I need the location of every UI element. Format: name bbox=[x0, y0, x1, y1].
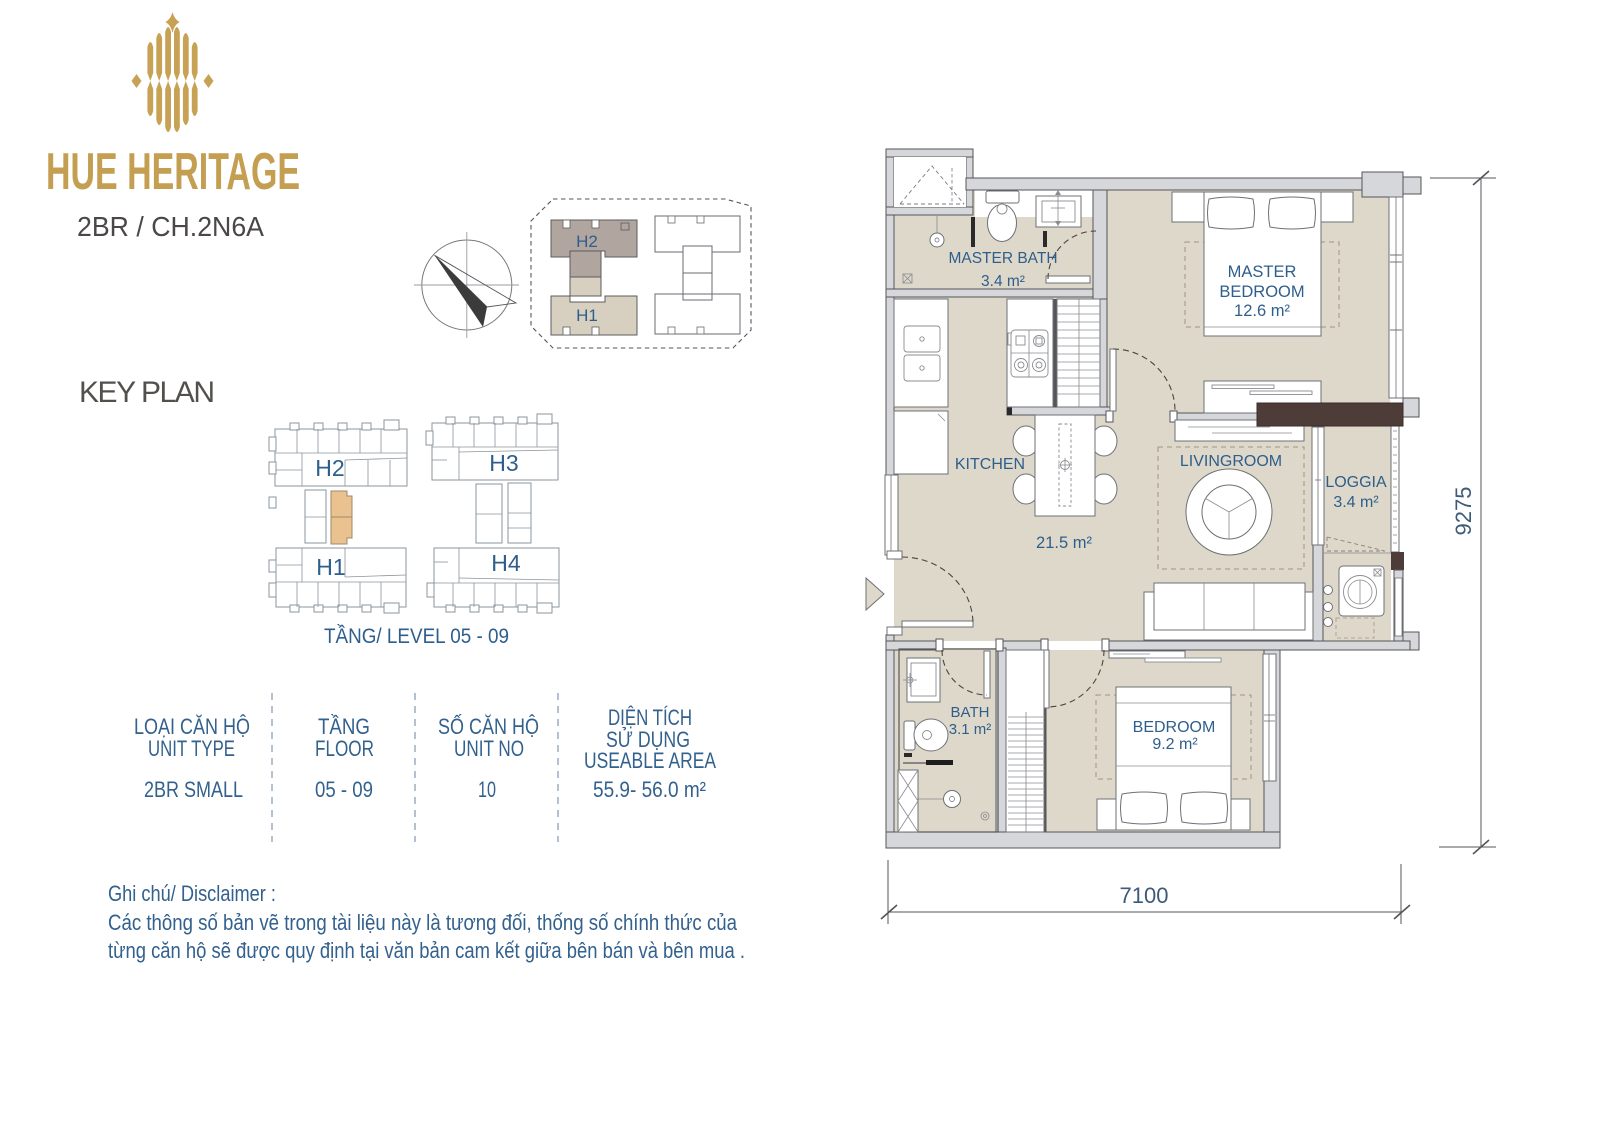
svg-text:9.2 m²: 9.2 m² bbox=[1152, 736, 1198, 753]
svg-text:Các thông số bản vẽ trong tài: Các thông số bản vẽ trong tài liệu này l… bbox=[108, 910, 738, 935]
svg-text:10: 10 bbox=[478, 777, 496, 802]
svg-text:BEDROOM: BEDROOM bbox=[1219, 283, 1304, 301]
svg-text:MASTER: MASTER bbox=[1228, 263, 1297, 281]
svg-text:3.4 m²: 3.4 m² bbox=[1333, 494, 1379, 511]
svg-text:USEABLE AREA: USEABLE AREA bbox=[584, 748, 716, 773]
svg-text:H3: H3 bbox=[489, 450, 518, 476]
svg-text:H2: H2 bbox=[315, 455, 344, 481]
svg-text:H1: H1 bbox=[316, 554, 345, 580]
svg-text:H4: H4 bbox=[491, 550, 521, 576]
svg-text:7100: 7100 bbox=[1120, 883, 1169, 908]
svg-text:55.9- 56.0 m²: 55.9- 56.0 m² bbox=[593, 777, 706, 802]
svg-text:2BR SMALL: 2BR SMALL bbox=[144, 777, 243, 802]
svg-text:HUE HERITAGE: HUE HERITAGE bbox=[46, 143, 300, 201]
svg-text:9275: 9275 bbox=[1451, 487, 1476, 536]
svg-text:FLOOR: FLOOR bbox=[315, 736, 374, 761]
svg-text:12.6 m²: 12.6 m² bbox=[1234, 302, 1290, 320]
svg-text:TẦNG/ LEVEL 05 - 09: TẦNG/ LEVEL 05 - 09 bbox=[324, 625, 509, 648]
svg-text:BEDROOM: BEDROOM bbox=[1133, 719, 1216, 736]
svg-text:3.1 m²: 3.1 m² bbox=[949, 721, 992, 738]
svg-text:LIVINGROOM: LIVINGROOM bbox=[1180, 453, 1282, 470]
svg-text:H2: H2 bbox=[576, 232, 598, 251]
svg-text:từng căn hộ sẽ được quy định t: từng căn hộ sẽ được quy định tại văn bản… bbox=[108, 938, 745, 963]
svg-text:KEY PLAN: KEY PLAN bbox=[79, 376, 215, 409]
svg-text:MASTER BATH: MASTER BATH bbox=[948, 250, 1057, 267]
svg-text:LOGGIA: LOGGIA bbox=[1325, 474, 1387, 491]
svg-text:2BR / CH.2N6A: 2BR / CH.2N6A bbox=[77, 211, 264, 242]
svg-text:21.5 m²: 21.5 m² bbox=[1036, 534, 1092, 552]
svg-text:KITCHEN: KITCHEN bbox=[955, 456, 1025, 473]
svg-text:BATH: BATH bbox=[951, 704, 990, 721]
svg-text:H1: H1 bbox=[576, 306, 598, 325]
svg-text:3.4 m²: 3.4 m² bbox=[981, 273, 1025, 290]
svg-text:UNIT TYPE: UNIT TYPE bbox=[148, 736, 235, 761]
svg-text:Ghi chú/ Disclaimer :: Ghi chú/ Disclaimer : bbox=[108, 881, 276, 906]
svg-text:UNIT NO: UNIT NO bbox=[454, 736, 524, 761]
svg-text:05 - 09: 05 - 09 bbox=[315, 777, 373, 802]
